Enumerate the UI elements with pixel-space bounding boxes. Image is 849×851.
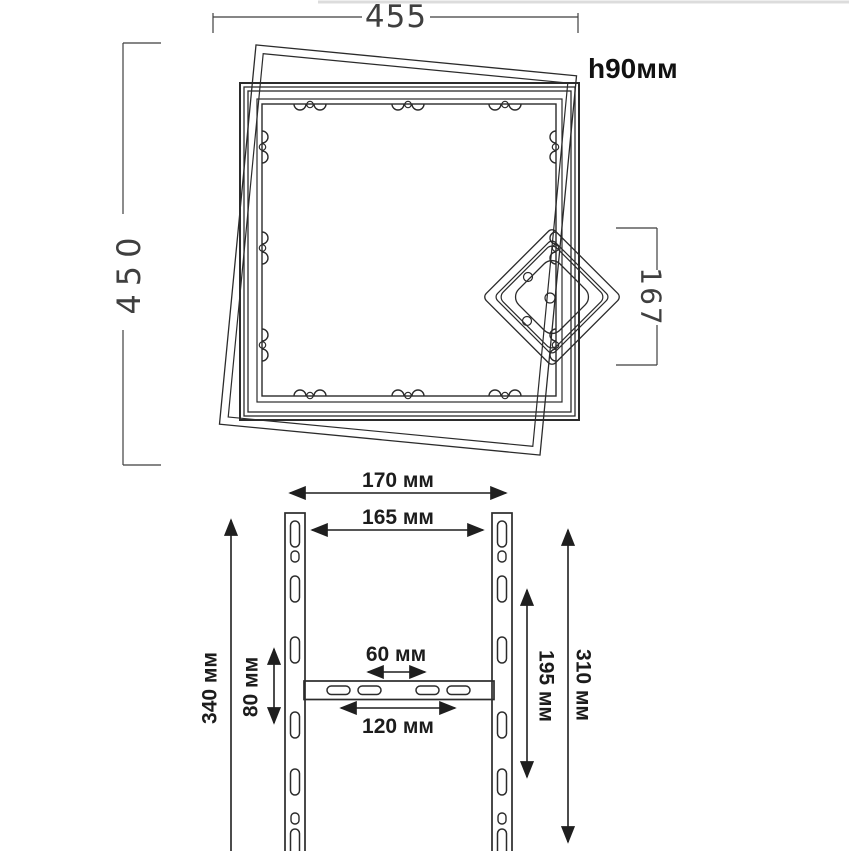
left-rail bbox=[285, 513, 305, 851]
dim-170mm-label: 170 мм bbox=[362, 469, 434, 492]
dim-195mm: 195 мм bbox=[527, 590, 558, 777]
profile-height-label: h90мм bbox=[588, 53, 678, 84]
dim-455-label: 455 bbox=[365, 0, 427, 35]
plate-hole bbox=[523, 317, 532, 326]
dim-80mm-label: 80 мм bbox=[240, 657, 263, 717]
dim-120mm: 120 мм bbox=[341, 708, 455, 738]
dim-310mm-label: 310 мм bbox=[572, 649, 595, 721]
right-rail bbox=[492, 513, 512, 851]
dim-340mm: 340 мм bbox=[199, 520, 232, 851]
dim-195mm-label: 195 мм bbox=[535, 650, 558, 722]
dim-165mm-label: 165 мм bbox=[362, 506, 434, 529]
crossbar bbox=[304, 681, 494, 700]
dim-170mm: 170 мм bbox=[290, 469, 506, 493]
tilted-cover bbox=[219, 45, 576, 455]
dim-120mm-label: 120 мм bbox=[362, 715, 434, 738]
frame-mounting-clips bbox=[259, 101, 558, 398]
left-rail-slots bbox=[291, 521, 300, 851]
dim-60mm-label: 60 мм bbox=[366, 643, 426, 666]
drawing-canvas: 455 450 167 h90мм bbox=[0, 0, 849, 851]
dim-60mm: 60 мм bbox=[366, 643, 426, 672]
mounting-rails bbox=[285, 513, 512, 851]
dim-310mm: 310 мм bbox=[568, 530, 595, 842]
dim-80mm: 80 мм bbox=[240, 649, 275, 723]
dim-167-label: 167 bbox=[635, 267, 668, 326]
right-rail-slots bbox=[498, 521, 507, 851]
dim-450: 450 bbox=[110, 43, 161, 465]
technical-drawing-page: 455 450 167 h90мм bbox=[0, 0, 849, 851]
dim-455: 455 bbox=[213, 0, 578, 35]
dim-340mm-label: 340 мм bbox=[199, 652, 222, 724]
dim-450-label: 450 bbox=[110, 229, 148, 314]
dim-167: 167 bbox=[616, 228, 668, 365]
dim-165mm: 165 мм bbox=[312, 506, 483, 530]
